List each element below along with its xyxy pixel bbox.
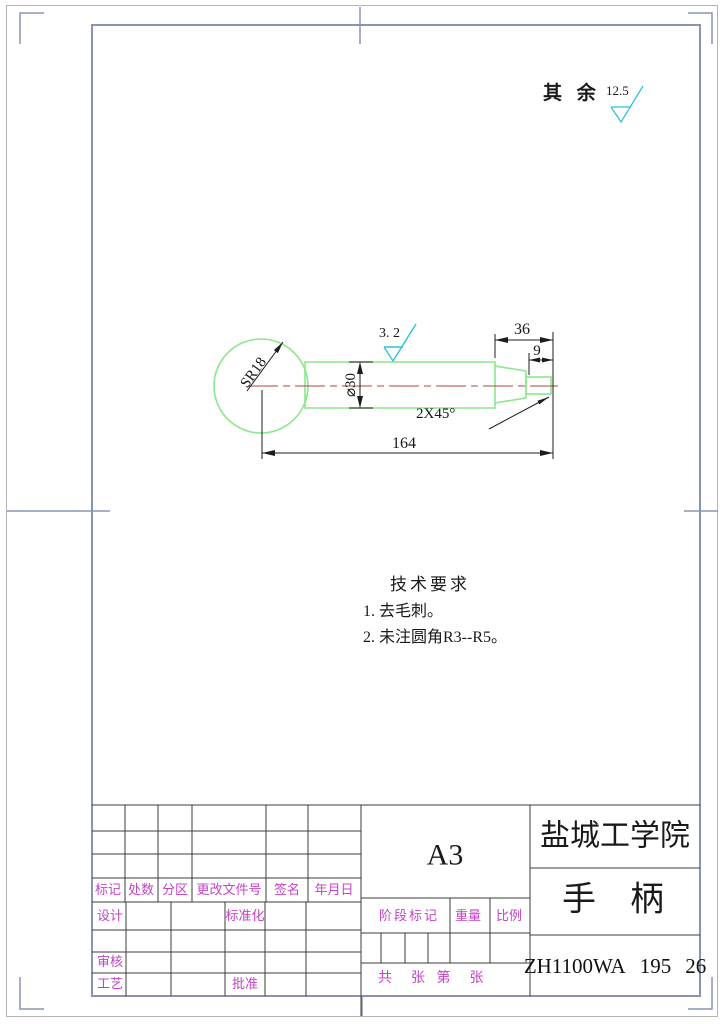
drawing-code-num2: 26 xyxy=(685,954,706,979)
drawing-sheet: 其 余 12.5 164 36 9 3. 2 2X45° ⌀30 SR18 技术… xyxy=(0,0,724,1024)
sheet-frame-svg xyxy=(0,0,724,1024)
header-mark: 标记 xyxy=(95,883,121,897)
role-standardization: 标准化 xyxy=(225,909,264,923)
header-zone: 分区 xyxy=(162,883,188,897)
other-surfaces-label: 其 余 xyxy=(543,84,601,105)
part-name: 手 柄 xyxy=(562,881,664,918)
tech-req-item: 2. 未注圆角R3--R5。 xyxy=(363,629,507,647)
role-approve: 批准 xyxy=(232,977,258,991)
paper-size: A3 xyxy=(427,839,464,872)
role-review: 审核 xyxy=(97,955,123,969)
header-date: 年月日 xyxy=(314,883,353,897)
neck-outline xyxy=(495,366,526,403)
sheets-label: 共 张 第 张 xyxy=(378,971,488,986)
drawing-code-row: ZH1100WA 195 26 xyxy=(530,950,700,982)
dim-chamfer: 2X45° xyxy=(416,406,455,423)
header-change-file: 更改文件号 xyxy=(196,883,261,897)
header-signature: 签名 xyxy=(274,883,300,897)
tech-req-item: 1. 去毛刺。 xyxy=(363,603,443,621)
scale-label: 比例 xyxy=(496,909,522,923)
school-name: 盐城工学院 xyxy=(540,820,690,853)
page-edge xyxy=(7,6,718,1017)
drawing-code-num1: 195 xyxy=(640,954,672,979)
other-surfaces-value: 12.5 xyxy=(606,84,629,98)
dim-diameter: ⌀30 xyxy=(343,373,360,397)
stage-mark-label: 阶段标记 xyxy=(379,909,439,923)
dim-9: 9 xyxy=(533,343,541,360)
role-process: 工艺 xyxy=(97,977,123,991)
header-count: 处数 xyxy=(128,883,154,897)
centering-marks xyxy=(7,7,718,1016)
drawing-code: ZH1100WA xyxy=(524,954,626,979)
dim-roughness-value: 3. 2 xyxy=(379,326,400,341)
shaft-outline xyxy=(305,362,495,408)
dim-overall-length: 164 xyxy=(392,435,416,453)
tech-req-title: 技术要求 xyxy=(390,576,470,595)
role-design: 设计 xyxy=(97,909,123,923)
weight-label: 重量 xyxy=(455,909,481,923)
dim-36: 36 xyxy=(514,321,530,339)
